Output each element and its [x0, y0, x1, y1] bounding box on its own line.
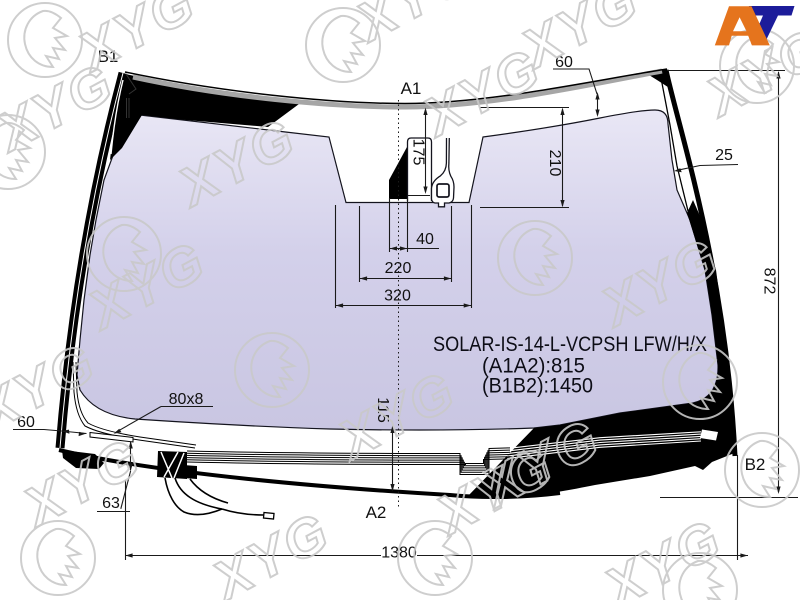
svg-text:175: 175	[409, 139, 426, 166]
svg-text:25: 25	[715, 147, 733, 164]
svg-text:872: 872	[760, 268, 777, 295]
svg-text:210: 210	[546, 150, 563, 177]
svg-text:A2: A2	[366, 503, 387, 522]
svg-text:80x8: 80x8	[169, 391, 204, 408]
svg-text:320: 320	[384, 288, 411, 305]
svg-text:B2: B2	[745, 455, 766, 474]
svg-text:40: 40	[416, 231, 434, 248]
svg-text:(B1B2):1450: (B1B2):1450	[482, 375, 593, 398]
svg-text:SOLAR-IS-14-L-VCPSH LFW/H/X: SOLAR-IS-14-L-VCPSH LFW/H/X	[433, 333, 707, 356]
